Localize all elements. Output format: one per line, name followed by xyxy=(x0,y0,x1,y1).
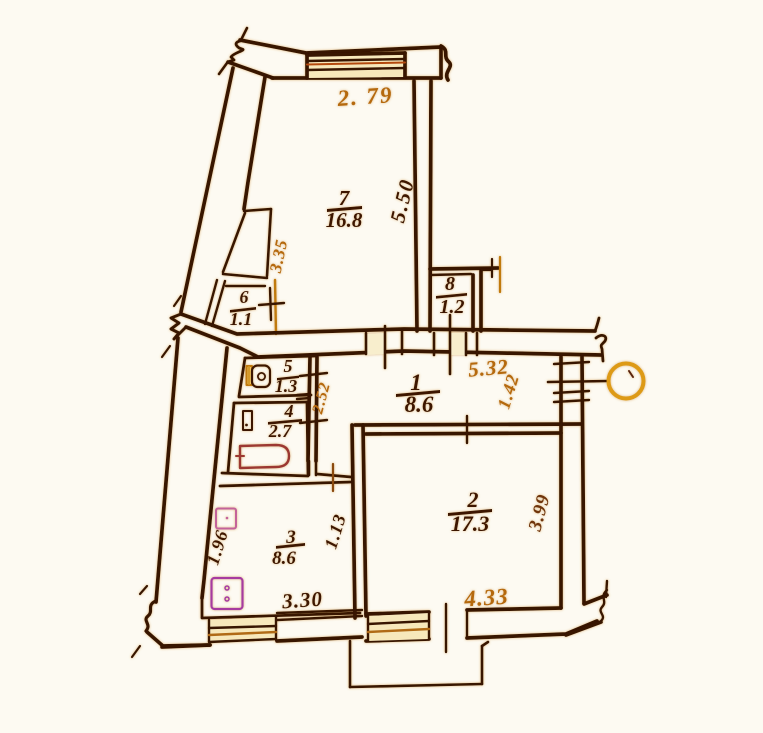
svg-text:8.6: 8.6 xyxy=(272,548,296,569)
svg-text:8.6: 8.6 xyxy=(405,392,434,417)
svg-text:2. 79: 2. 79 xyxy=(336,82,395,111)
svg-text:1.3: 1.3 xyxy=(275,376,298,396)
svg-text:1.1: 1.1 xyxy=(230,309,253,329)
svg-text:3.30: 3.30 xyxy=(280,587,323,614)
svg-text:3.99: 3.99 xyxy=(524,492,554,534)
svg-text:4.33: 4.33 xyxy=(463,584,510,612)
svg-text:16.8: 16.8 xyxy=(326,208,363,232)
svg-text:5: 5 xyxy=(284,356,293,376)
svg-text:8: 8 xyxy=(445,273,455,295)
svg-text:2.52: 2.52 xyxy=(309,380,334,416)
svg-text:6: 6 xyxy=(240,287,249,307)
svg-text:2: 2 xyxy=(467,487,479,512)
svg-text:2.7: 2.7 xyxy=(268,421,293,441)
svg-text:4: 4 xyxy=(284,401,294,421)
svg-text:17.3: 17.3 xyxy=(451,511,490,536)
svg-text:1.2: 1.2 xyxy=(440,296,465,318)
svg-text:1.13: 1.13 xyxy=(321,511,351,551)
svg-text:7: 7 xyxy=(339,186,351,210)
